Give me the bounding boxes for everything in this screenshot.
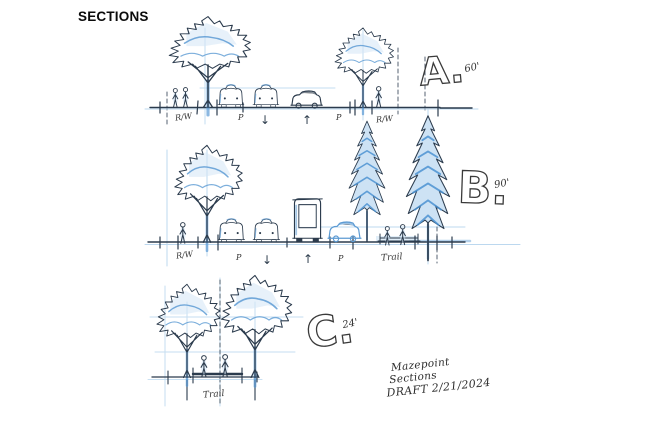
car-drawing [218,219,245,242]
trail-label-c: Trail [203,389,225,401]
section-b: R/W P ↓ ↑ P Trail B. 90' [145,116,520,267]
person-figure [183,88,188,107]
notes-block: Mazepoint Sections DRAFT 2/21/2024 [382,352,491,400]
deciduous-tree-c1 [157,284,220,385]
sections-sketch: R/W P ↓ ↑ P R/W A. 60' [0,0,660,427]
rw-label-a-left: R/W [174,111,194,123]
truck-drawing [293,199,323,242]
section-a: R/W P ↓ ↑ P R/W A. 60' [145,17,481,127]
lane-arrow-down-b: ↓ [262,253,272,267]
conifer-tree-b1 [349,121,385,241]
lane-arrow-down-a: ↓ [260,113,270,127]
car-drawing [291,91,322,108]
ground-line-a [150,108,472,109]
car-drawing [253,219,280,242]
lane-arrow-up-b: ↑ [303,252,313,266]
dimension-c: 24' [341,317,359,331]
section-c: Trail C. 24' [148,275,359,400]
person-figure [180,223,186,244]
section-letter-a: A. [417,47,465,95]
deciduous-tree-a2 [335,28,394,114]
parking-label-b-left: P [235,253,242,262]
lane-arrow-up-a: ↑ [302,113,312,127]
car-sketch-blue [328,222,361,242]
person-figure [376,87,381,107]
parking-label-a-left: P [237,113,244,122]
sketch-page: SECTIONS [0,0,660,427]
parking-label-b-right: P [337,254,344,263]
parking-label-a-right: P [335,113,342,122]
dimension-a: 60' [464,61,481,75]
trail-label-b: Trail [381,252,403,263]
rw-label-a-right: R/W [375,114,395,125]
person-figure [173,89,178,108]
rw-label-b-left: R/W [175,249,195,261]
deciduous-tree-c2 [221,275,291,386]
section-letter-c: C. [303,303,356,358]
